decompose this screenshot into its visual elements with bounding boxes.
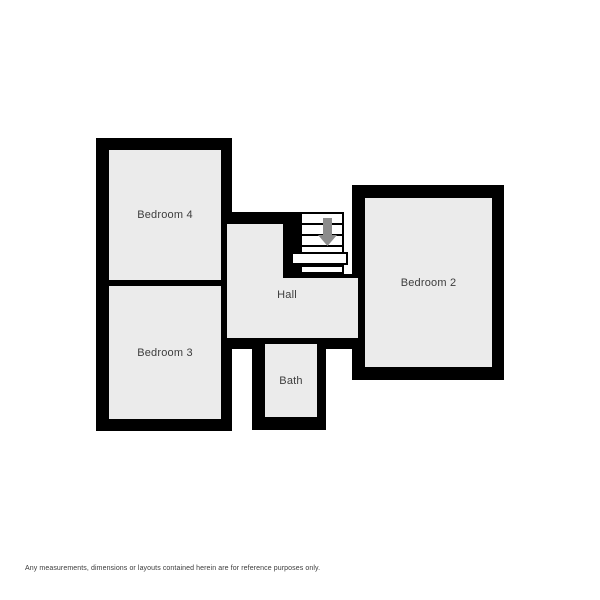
stair-step-line bbox=[302, 265, 342, 267]
bedroom4-label: Bedroom 4 bbox=[137, 209, 193, 221]
stair-landing-step bbox=[291, 252, 348, 265]
bedroom2-label: Bedroom 2 bbox=[401, 277, 457, 289]
bath-label: Bath bbox=[279, 375, 302, 387]
room-bedroom4: Bedroom 4 bbox=[109, 150, 221, 280]
room-bath: Bath bbox=[265, 344, 317, 417]
hall-label-box: Hall bbox=[227, 287, 347, 303]
room-bedroom3: Bedroom 3 bbox=[109, 286, 221, 419]
floor-plan: Bedroom 4 Bedroom 3 Hall Bath Bedroom 2 … bbox=[0, 0, 600, 600]
room-bedroom2: Bedroom 2 bbox=[365, 198, 492, 367]
stairs-down-arrow-icon bbox=[315, 216, 338, 247]
disclaimer-text: Any measurements, dimensions or layouts … bbox=[25, 565, 320, 572]
hall-label: Hall bbox=[277, 289, 297, 301]
bedroom3-label: Bedroom 3 bbox=[137, 347, 193, 359]
